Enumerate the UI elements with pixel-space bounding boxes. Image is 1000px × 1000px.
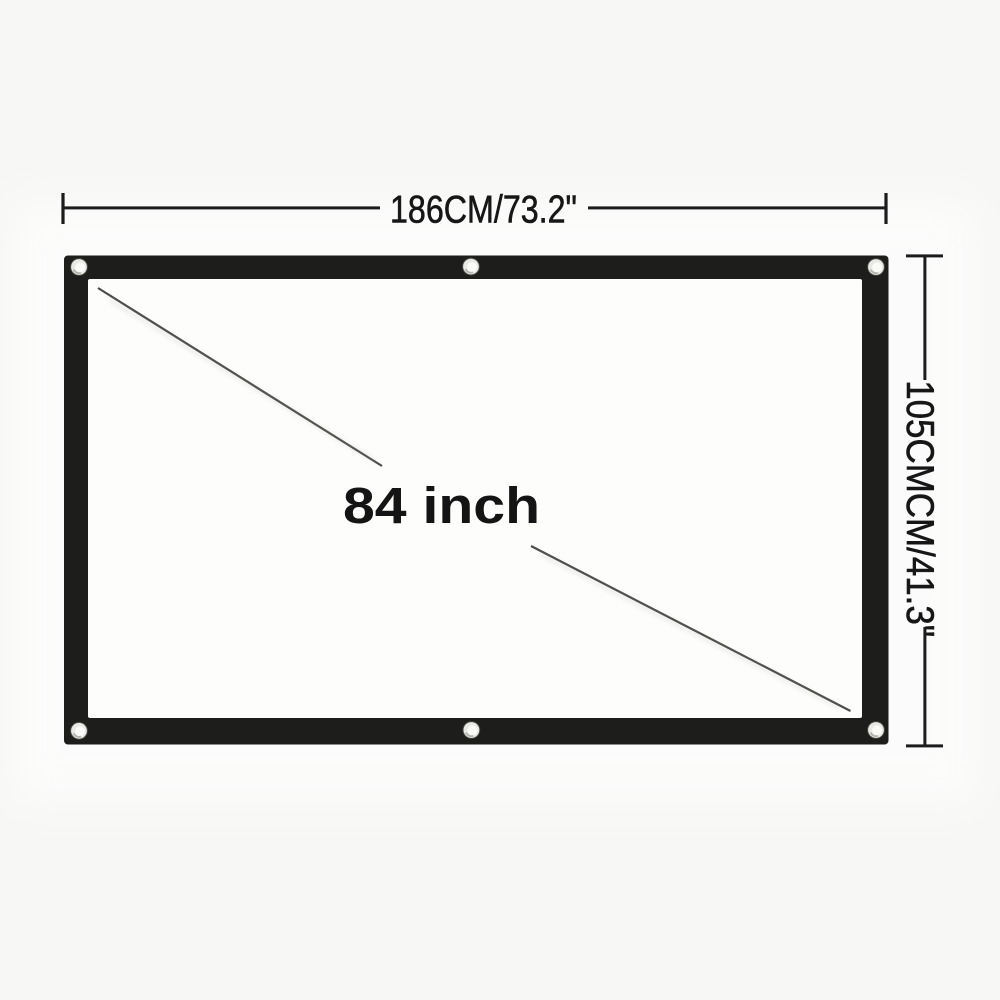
svg-text:105CMCM/41.3": 105CMCM/41.3": [898, 380, 941, 637]
svg-text:84 inch: 84 inch: [343, 477, 540, 534]
svg-text:186CM/73.2": 186CM/73.2": [390, 189, 577, 232]
